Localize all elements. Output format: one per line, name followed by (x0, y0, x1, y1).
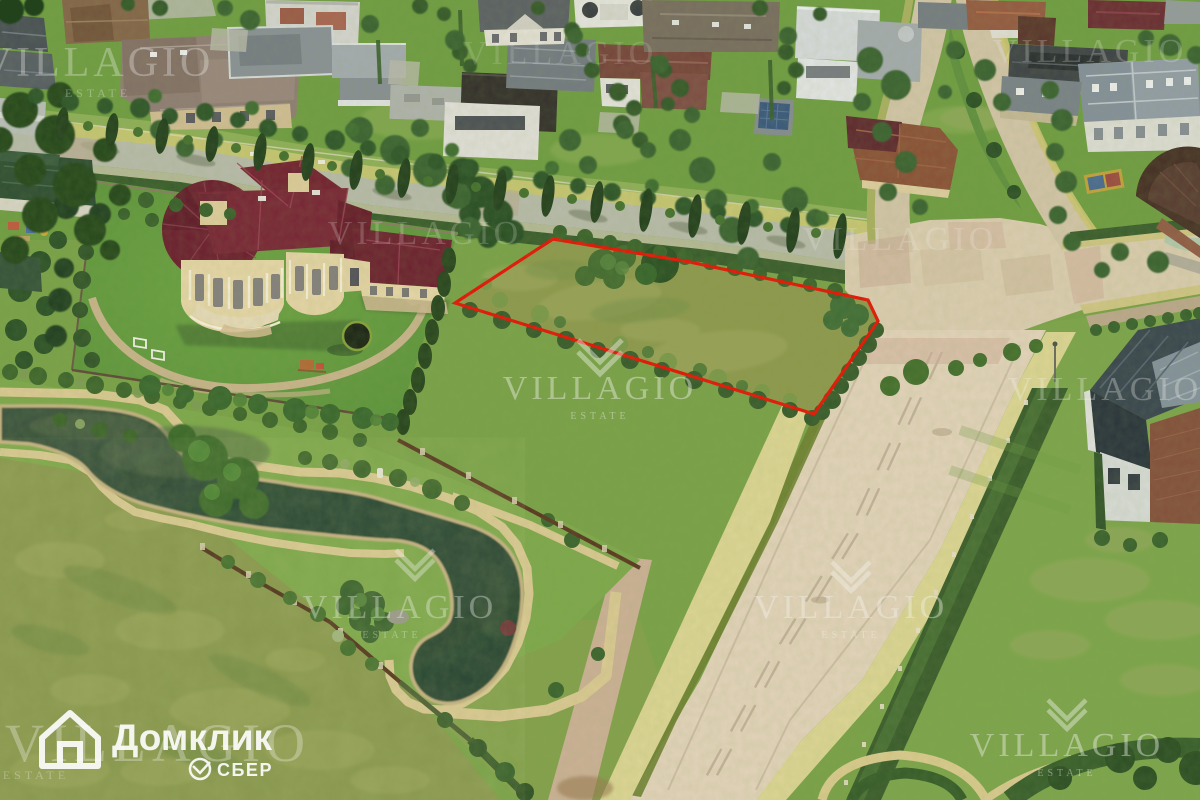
svg-text:VILLAGIO: VILLAGIO (754, 589, 948, 626)
svg-text:VILLAGIO: VILLAGIO (463, 35, 657, 72)
svg-text:ESTATE: ESTATE (362, 630, 421, 641)
svg-text:СБЕР: СБЕР (217, 760, 273, 780)
svg-text:VILLAGIO: VILLAGIO (1008, 371, 1200, 408)
svg-text:ESTATE: ESTATE (3, 768, 69, 782)
svg-text:ESTATE: ESTATE (570, 411, 629, 422)
svg-text:ESTATE: ESTATE (821, 630, 880, 641)
svg-text:VILLAGIO: VILLAGIO (970, 727, 1164, 764)
svg-text:VILLAGIO: VILLAGIO (993, 33, 1187, 70)
svg-text:VILLAGIO: VILLAGIO (328, 215, 522, 252)
svg-text:ESTATE: ESTATE (1037, 768, 1096, 779)
svg-text:VILLAGIO: VILLAGIO (503, 370, 697, 407)
svg-text:VILLAGIO: VILLAGIO (803, 221, 997, 258)
svg-text:Домклик: Домклик (112, 717, 273, 758)
svg-text:VILLAGIO: VILLAGIO (303, 589, 497, 626)
svg-text:ESTATE: ESTATE (65, 86, 131, 100)
svg-text:VILLAGIO: VILLAGIO (0, 40, 214, 86)
